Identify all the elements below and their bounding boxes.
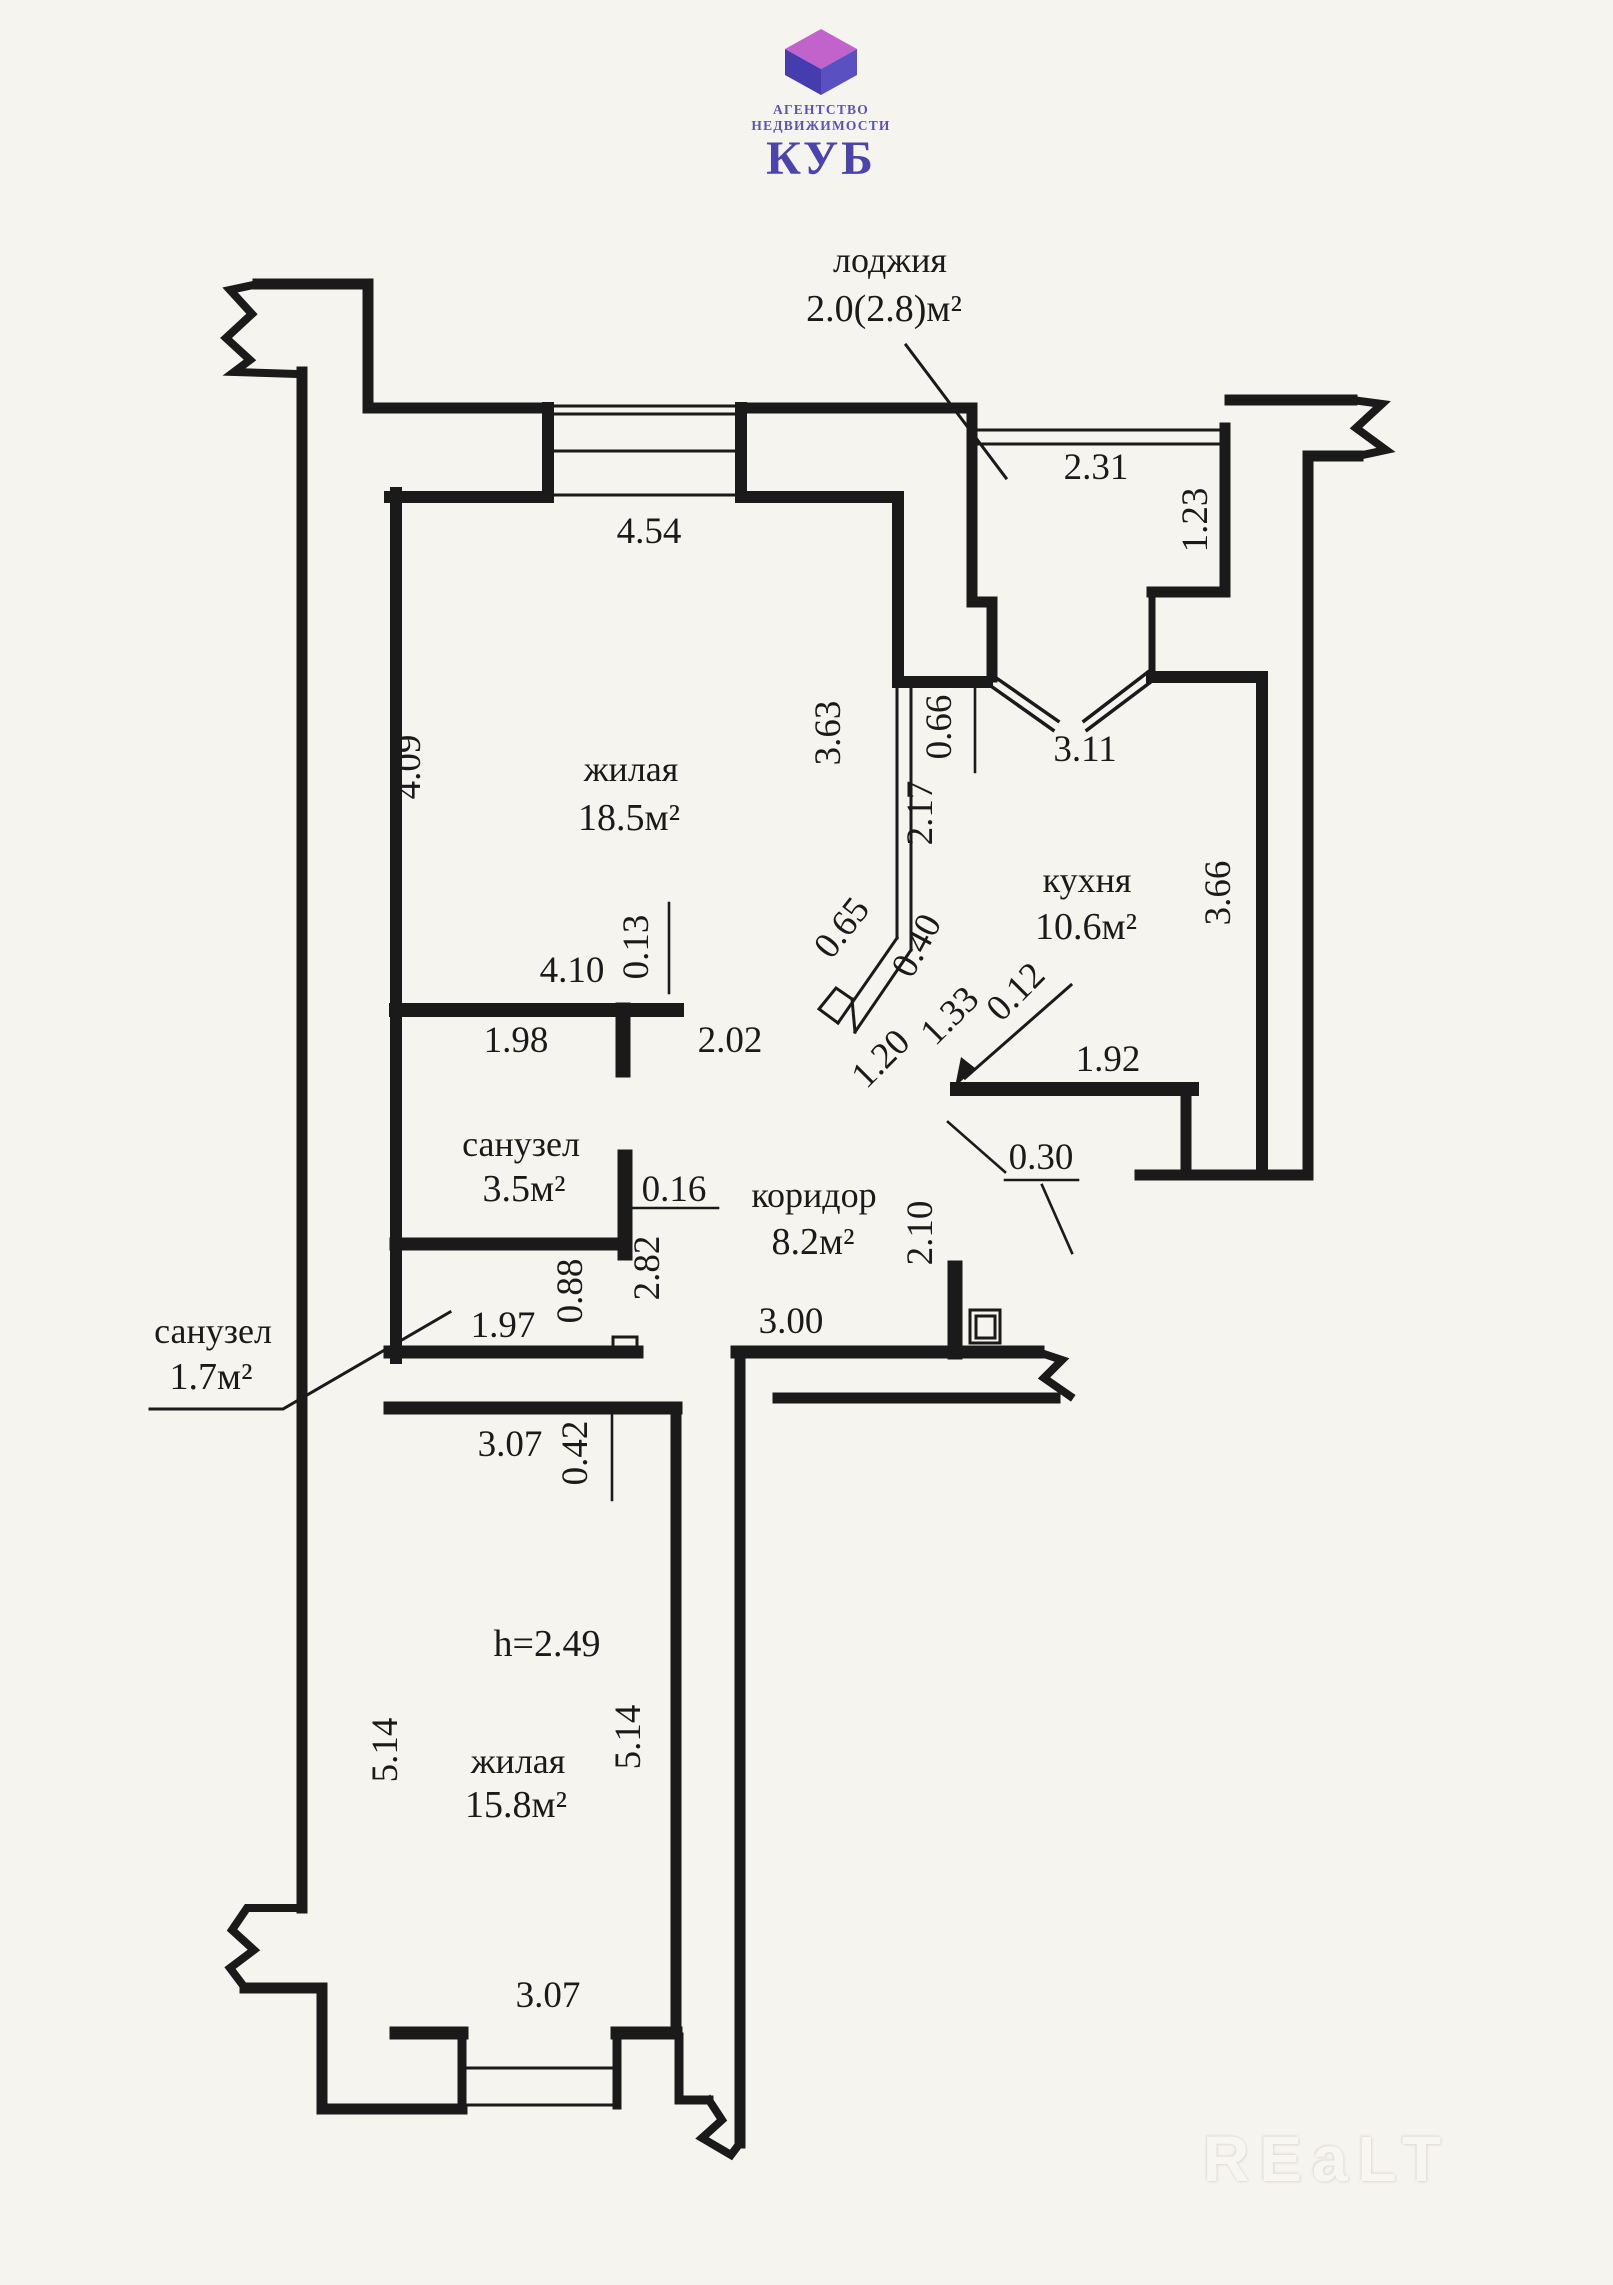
dim-label: 0.40 — [884, 907, 951, 983]
dim-label: 3.66 — [1198, 861, 1239, 926]
room-label: 10.6м² — [1035, 906, 1137, 948]
floor-plan-page: АГЕНТСТВО НЕДВИЖИМОСТИ КУБ — [0, 0, 1613, 2285]
realt-watermark: REaLT — [1203, 2122, 1451, 2196]
dim-label: 0.13 — [616, 915, 657, 980]
room-label: 8.2м² — [772, 1221, 855, 1263]
plan-labels: лоджия2.0(2.8)м²жилая18.5м²кухня10.6м²са… — [154, 240, 1239, 2016]
dim-label: 0.66 — [919, 695, 960, 760]
room-label: 1.7м² — [170, 1356, 253, 1398]
dim-label: 5.14 — [608, 1705, 649, 1770]
dim-label: 2.17 — [900, 781, 941, 846]
dim-label: 1.33 — [912, 978, 987, 1053]
room-label: жилая — [583, 749, 679, 789]
dim-label: 1.92 — [1076, 1039, 1141, 1080]
dim-label: 1.97 — [471, 1305, 536, 1346]
room-label: санузел — [462, 1124, 580, 1164]
room-label: лоджия — [833, 240, 947, 280]
room-label: h=2.49 — [494, 1623, 601, 1665]
dim-label: 2.82 — [627, 1236, 668, 1301]
room-label: 3.5м² — [483, 1168, 566, 1210]
dim-label: 1.23 — [1175, 488, 1216, 553]
dim-label: 0.30 — [1009, 1137, 1074, 1178]
dim-label: 2.10 — [900, 1201, 941, 1266]
dim-label: 0.42 — [555, 1421, 596, 1486]
room-label: санузел — [154, 1311, 272, 1351]
room-label: кухня — [1043, 860, 1132, 900]
room-label: жилая — [470, 1741, 566, 1781]
dim-label: 4.10 — [540, 950, 605, 991]
room-label: 15.8м² — [465, 1784, 567, 1826]
loggia-door-sashes — [988, 672, 1152, 730]
dim-label: 3.63 — [808, 701, 849, 766]
dim-label: 2.31 — [1064, 447, 1129, 488]
dim-label: 4.54 — [617, 511, 682, 552]
dim-label: 2.02 — [698, 1020, 763, 1061]
dim-label: 0.65 — [806, 890, 878, 966]
dim-label: 3.00 — [759, 1301, 824, 1342]
dim-label: 0.16 — [642, 1169, 707, 1210]
dim-label: 4.09 — [388, 735, 429, 800]
floor-plan-drawing: лоджия2.0(2.8)м²жилая18.5м²кухня10.6м²са… — [0, 0, 1613, 2285]
dim-label: 1.98 — [484, 1020, 549, 1061]
dim-label: 3.11 — [1053, 729, 1116, 770]
dim-label: 3.07 — [478, 1424, 543, 1465]
room-label: коридор — [751, 1175, 876, 1215]
room-label: 18.5м² — [578, 797, 680, 839]
dim-label: 0.88 — [550, 1259, 591, 1324]
dim-label: 0.12 — [978, 954, 1053, 1029]
dim-label: 5.14 — [365, 1718, 406, 1783]
room-label: 2.0(2.8)м² — [806, 288, 962, 330]
dim-label: 3.07 — [516, 1975, 581, 2016]
